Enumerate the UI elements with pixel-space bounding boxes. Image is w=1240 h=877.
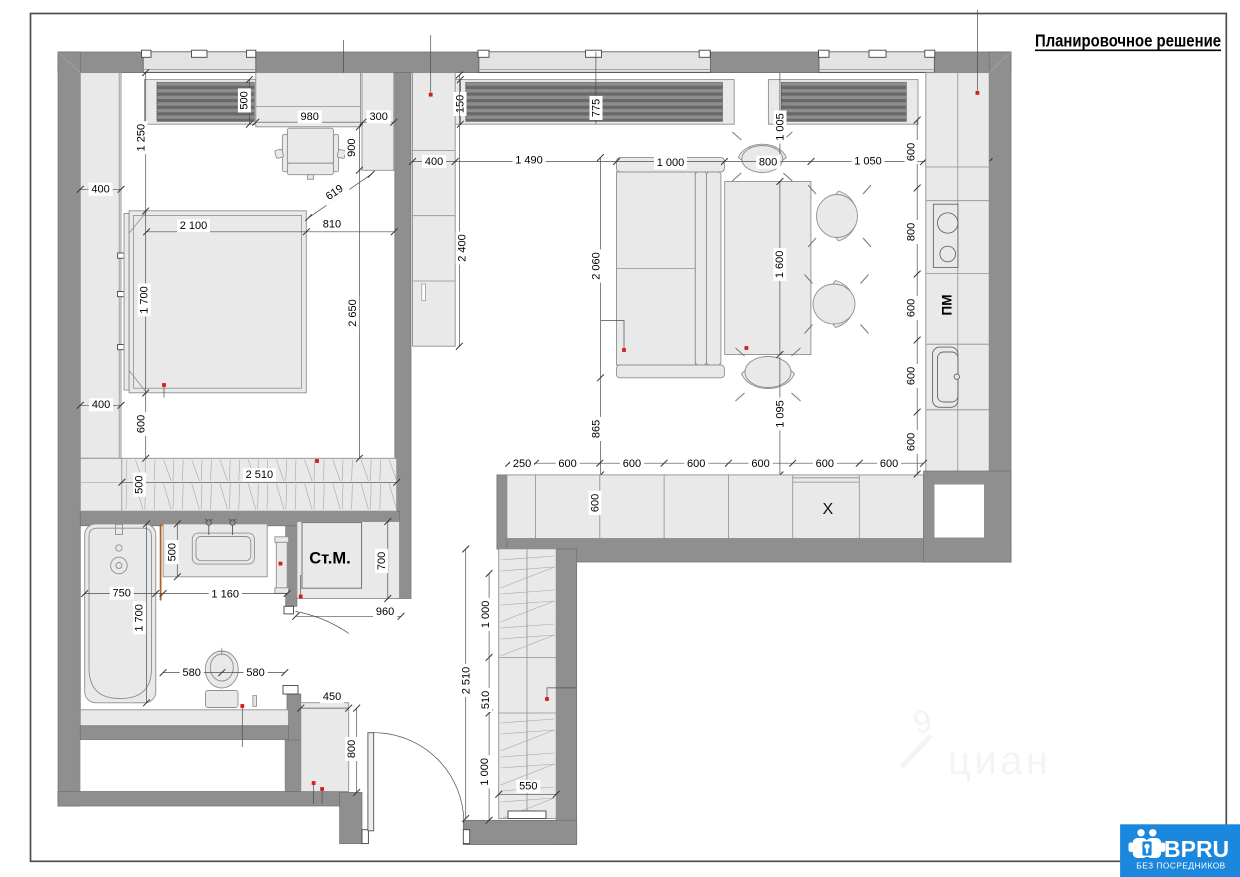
svg-text:2 650: 2 650 xyxy=(347,299,359,327)
svg-text:1 005: 1 005 xyxy=(774,113,786,141)
svg-text:600: 600 xyxy=(905,433,917,451)
svg-text:1 250: 1 250 xyxy=(135,124,147,152)
svg-text:980: 980 xyxy=(301,111,319,123)
svg-text:1 600: 1 600 xyxy=(774,251,786,279)
svg-text:Планировочное решение: Планировочное решение xyxy=(1035,31,1221,51)
svg-text:1 095: 1 095 xyxy=(774,400,786,428)
svg-text:775: 775 xyxy=(590,99,602,117)
svg-text:1 160: 1 160 xyxy=(211,588,239,600)
svg-text:150: 150 xyxy=(454,95,466,113)
svg-text:600: 600 xyxy=(558,458,576,470)
svg-text:550: 550 xyxy=(519,781,537,793)
svg-text:900: 900 xyxy=(346,139,358,157)
svg-text:600: 600 xyxy=(905,299,917,317)
svg-text:600: 600 xyxy=(816,458,834,470)
svg-text:960: 960 xyxy=(376,606,394,618)
svg-text:600: 600 xyxy=(905,143,917,161)
svg-text:250: 250 xyxy=(513,458,531,470)
svg-text:400: 400 xyxy=(92,399,110,411)
svg-text:ПМ: ПМ xyxy=(939,295,954,316)
svg-text:X: X xyxy=(822,501,833,518)
svg-text:500: 500 xyxy=(239,91,251,109)
svg-text:600: 600 xyxy=(905,367,917,385)
svg-text:800: 800 xyxy=(905,223,917,241)
svg-text:2 100: 2 100 xyxy=(180,220,208,232)
svg-text:1 000: 1 000 xyxy=(657,157,685,169)
svg-text:1 050: 1 050 xyxy=(854,155,882,167)
svg-text:1 000: 1 000 xyxy=(479,758,491,786)
svg-text:300: 300 xyxy=(370,111,388,123)
svg-text:510: 510 xyxy=(480,691,492,709)
svg-text:BPRU: BPRU xyxy=(1164,836,1229,862)
svg-text:Ст.М.: Ст.М. xyxy=(309,550,350,568)
svg-text:600: 600 xyxy=(880,458,898,470)
svg-text:2 060: 2 060 xyxy=(591,252,603,280)
svg-text:750: 750 xyxy=(113,588,131,600)
svg-text:2 400: 2 400 xyxy=(456,234,468,262)
svg-text:500: 500 xyxy=(134,476,146,494)
svg-text:600: 600 xyxy=(623,458,641,470)
svg-text:2 510: 2 510 xyxy=(246,469,274,481)
svg-text:810: 810 xyxy=(323,219,341,231)
svg-text:400: 400 xyxy=(425,156,443,168)
svg-text:600: 600 xyxy=(687,458,705,470)
svg-text:580: 580 xyxy=(246,667,264,679)
svg-text:1 700: 1 700 xyxy=(134,604,146,632)
svg-text:800: 800 xyxy=(759,157,777,169)
svg-text:450: 450 xyxy=(323,691,341,703)
svg-text:600: 600 xyxy=(751,458,769,470)
svg-text:600: 600 xyxy=(135,415,147,433)
svg-text:1 000: 1 000 xyxy=(480,601,492,629)
svg-text:2 510: 2 510 xyxy=(460,667,472,695)
svg-text:циан: циан xyxy=(948,739,1052,783)
svg-text:600: 600 xyxy=(589,494,601,512)
svg-text:800: 800 xyxy=(346,740,358,758)
svg-text:700: 700 xyxy=(376,552,388,570)
svg-text:1 490: 1 490 xyxy=(515,154,543,166)
svg-text:БЕЗ ПОСРЕДНИКОВ: БЕЗ ПОСРЕДНИКОВ xyxy=(1136,860,1225,870)
svg-text:580: 580 xyxy=(183,667,201,679)
svg-text:400: 400 xyxy=(91,184,109,196)
svg-text:1 700: 1 700 xyxy=(139,286,151,314)
svg-text:865: 865 xyxy=(591,420,603,438)
svg-text:500: 500 xyxy=(167,543,179,561)
